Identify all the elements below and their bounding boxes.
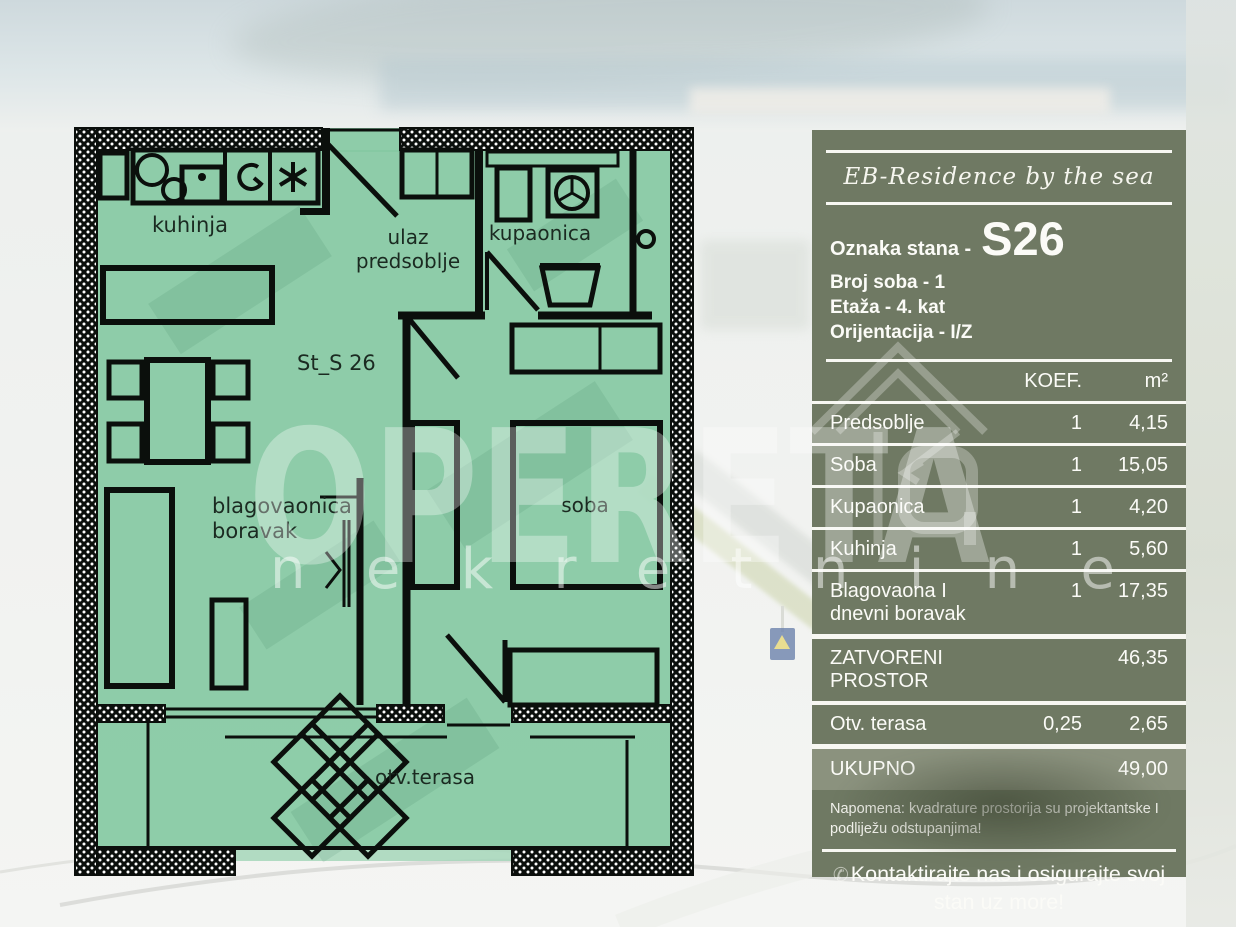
real-estate-floorplan-page: kuhinja ulaz predsoblje kupaonica St_S 2… xyxy=(0,0,1236,927)
row-area: 17,35 xyxy=(1082,580,1168,603)
label-ulaz: ulaz xyxy=(388,225,429,249)
row-label: Soba xyxy=(830,454,1004,477)
label-plan-id: St_S 26 xyxy=(297,351,376,376)
row-area: 5,60 xyxy=(1082,538,1168,561)
row-koef: 0,25 xyxy=(1004,713,1082,736)
row-area: 2,65 xyxy=(1082,713,1168,736)
info-rooms: Broj soba - 1 xyxy=(830,270,1168,295)
row-koef: 1 xyxy=(1004,454,1082,477)
table-row: Kupaonica 1 4,20 xyxy=(812,485,1186,527)
unit-id-label: Oznaka stana - xyxy=(830,238,971,261)
row-area: 15,05 xyxy=(1082,454,1168,477)
phone-icon: ✆ xyxy=(833,865,849,886)
row-area: 4,20 xyxy=(1082,496,1168,519)
row-area: 46,35 xyxy=(1082,647,1168,670)
header-koef: KOEF. xyxy=(1004,370,1082,393)
row-label: Kupaonica xyxy=(830,496,1004,519)
header-m2: m² xyxy=(1082,370,1168,393)
row-label: Predsoblje xyxy=(830,412,1004,435)
label-kuhinja: kuhinja xyxy=(152,213,228,237)
label-otv-terasa: otv.terasa xyxy=(375,765,475,789)
unit-id-row: Oznaka stana - S26 xyxy=(830,215,1168,262)
row-label: Otv. terasa xyxy=(830,713,1004,736)
row-koef: 1 xyxy=(1004,496,1082,519)
row-koef: 1 xyxy=(1004,412,1082,435)
table-row: Soba 1 15,05 xyxy=(812,443,1186,485)
row-label: ZATVORENI PROSTOR xyxy=(830,647,1004,693)
row-label: Blagovaona I dnevni boravak xyxy=(830,580,1004,626)
label-soba: soba xyxy=(561,493,609,517)
area-table-header: KOEF. m² xyxy=(812,362,1186,401)
info-floor: Etaža - 4. kat xyxy=(830,295,1168,320)
table-row: Otv. terasa 0,25 2,65 xyxy=(812,701,1186,744)
row-label: Kuhinja xyxy=(830,538,1004,561)
table-row-subtotal: ZATVORENI PROSTOR 46,35 xyxy=(812,634,1186,701)
area-table: KOEF. m² Predsoblje 1 4,15 Soba 1 15,05 … xyxy=(812,359,1186,790)
unit-id-value: S26 xyxy=(981,215,1065,262)
project-brand-title: EB-Residence by the sea xyxy=(812,153,1186,202)
faded-logo-blob xyxy=(840,749,1164,859)
table-row: Predsoblje 1 4,15 xyxy=(812,401,1186,443)
table-row: Kuhinja 1 5,60 xyxy=(812,527,1186,569)
contact-cta: ✆Kontaktirajte nas i osigurajte svoj sta… xyxy=(828,861,1170,917)
unit-info-panel: EB-Residence by the sea Oznaka stana - S… xyxy=(812,130,1186,877)
table-row: Blagovaona I dnevni boravak 1 17,35 xyxy=(812,569,1186,634)
row-area: 4,15 xyxy=(1082,412,1168,435)
label-predsoblje: predsoblje xyxy=(356,249,460,273)
label-kupaonica: kupaonica xyxy=(489,221,591,245)
contact-cta-text: Kontaktirajte nas i osigurajte svoj stan… xyxy=(851,862,1165,914)
row-koef: 1 xyxy=(1004,580,1082,603)
info-orientation: Orijentacija - I/Z xyxy=(830,320,1168,345)
label-blagovaonica: blagovaonica xyxy=(212,494,352,518)
row-koef: 1 xyxy=(1004,538,1082,561)
unit-info-lines: Broj soba - 1 Etaža - 4. kat Orijentacij… xyxy=(830,270,1168,345)
burner-dot-icon xyxy=(198,173,206,181)
label-boravak: boravak xyxy=(212,519,298,543)
divider-line xyxy=(826,202,1172,205)
